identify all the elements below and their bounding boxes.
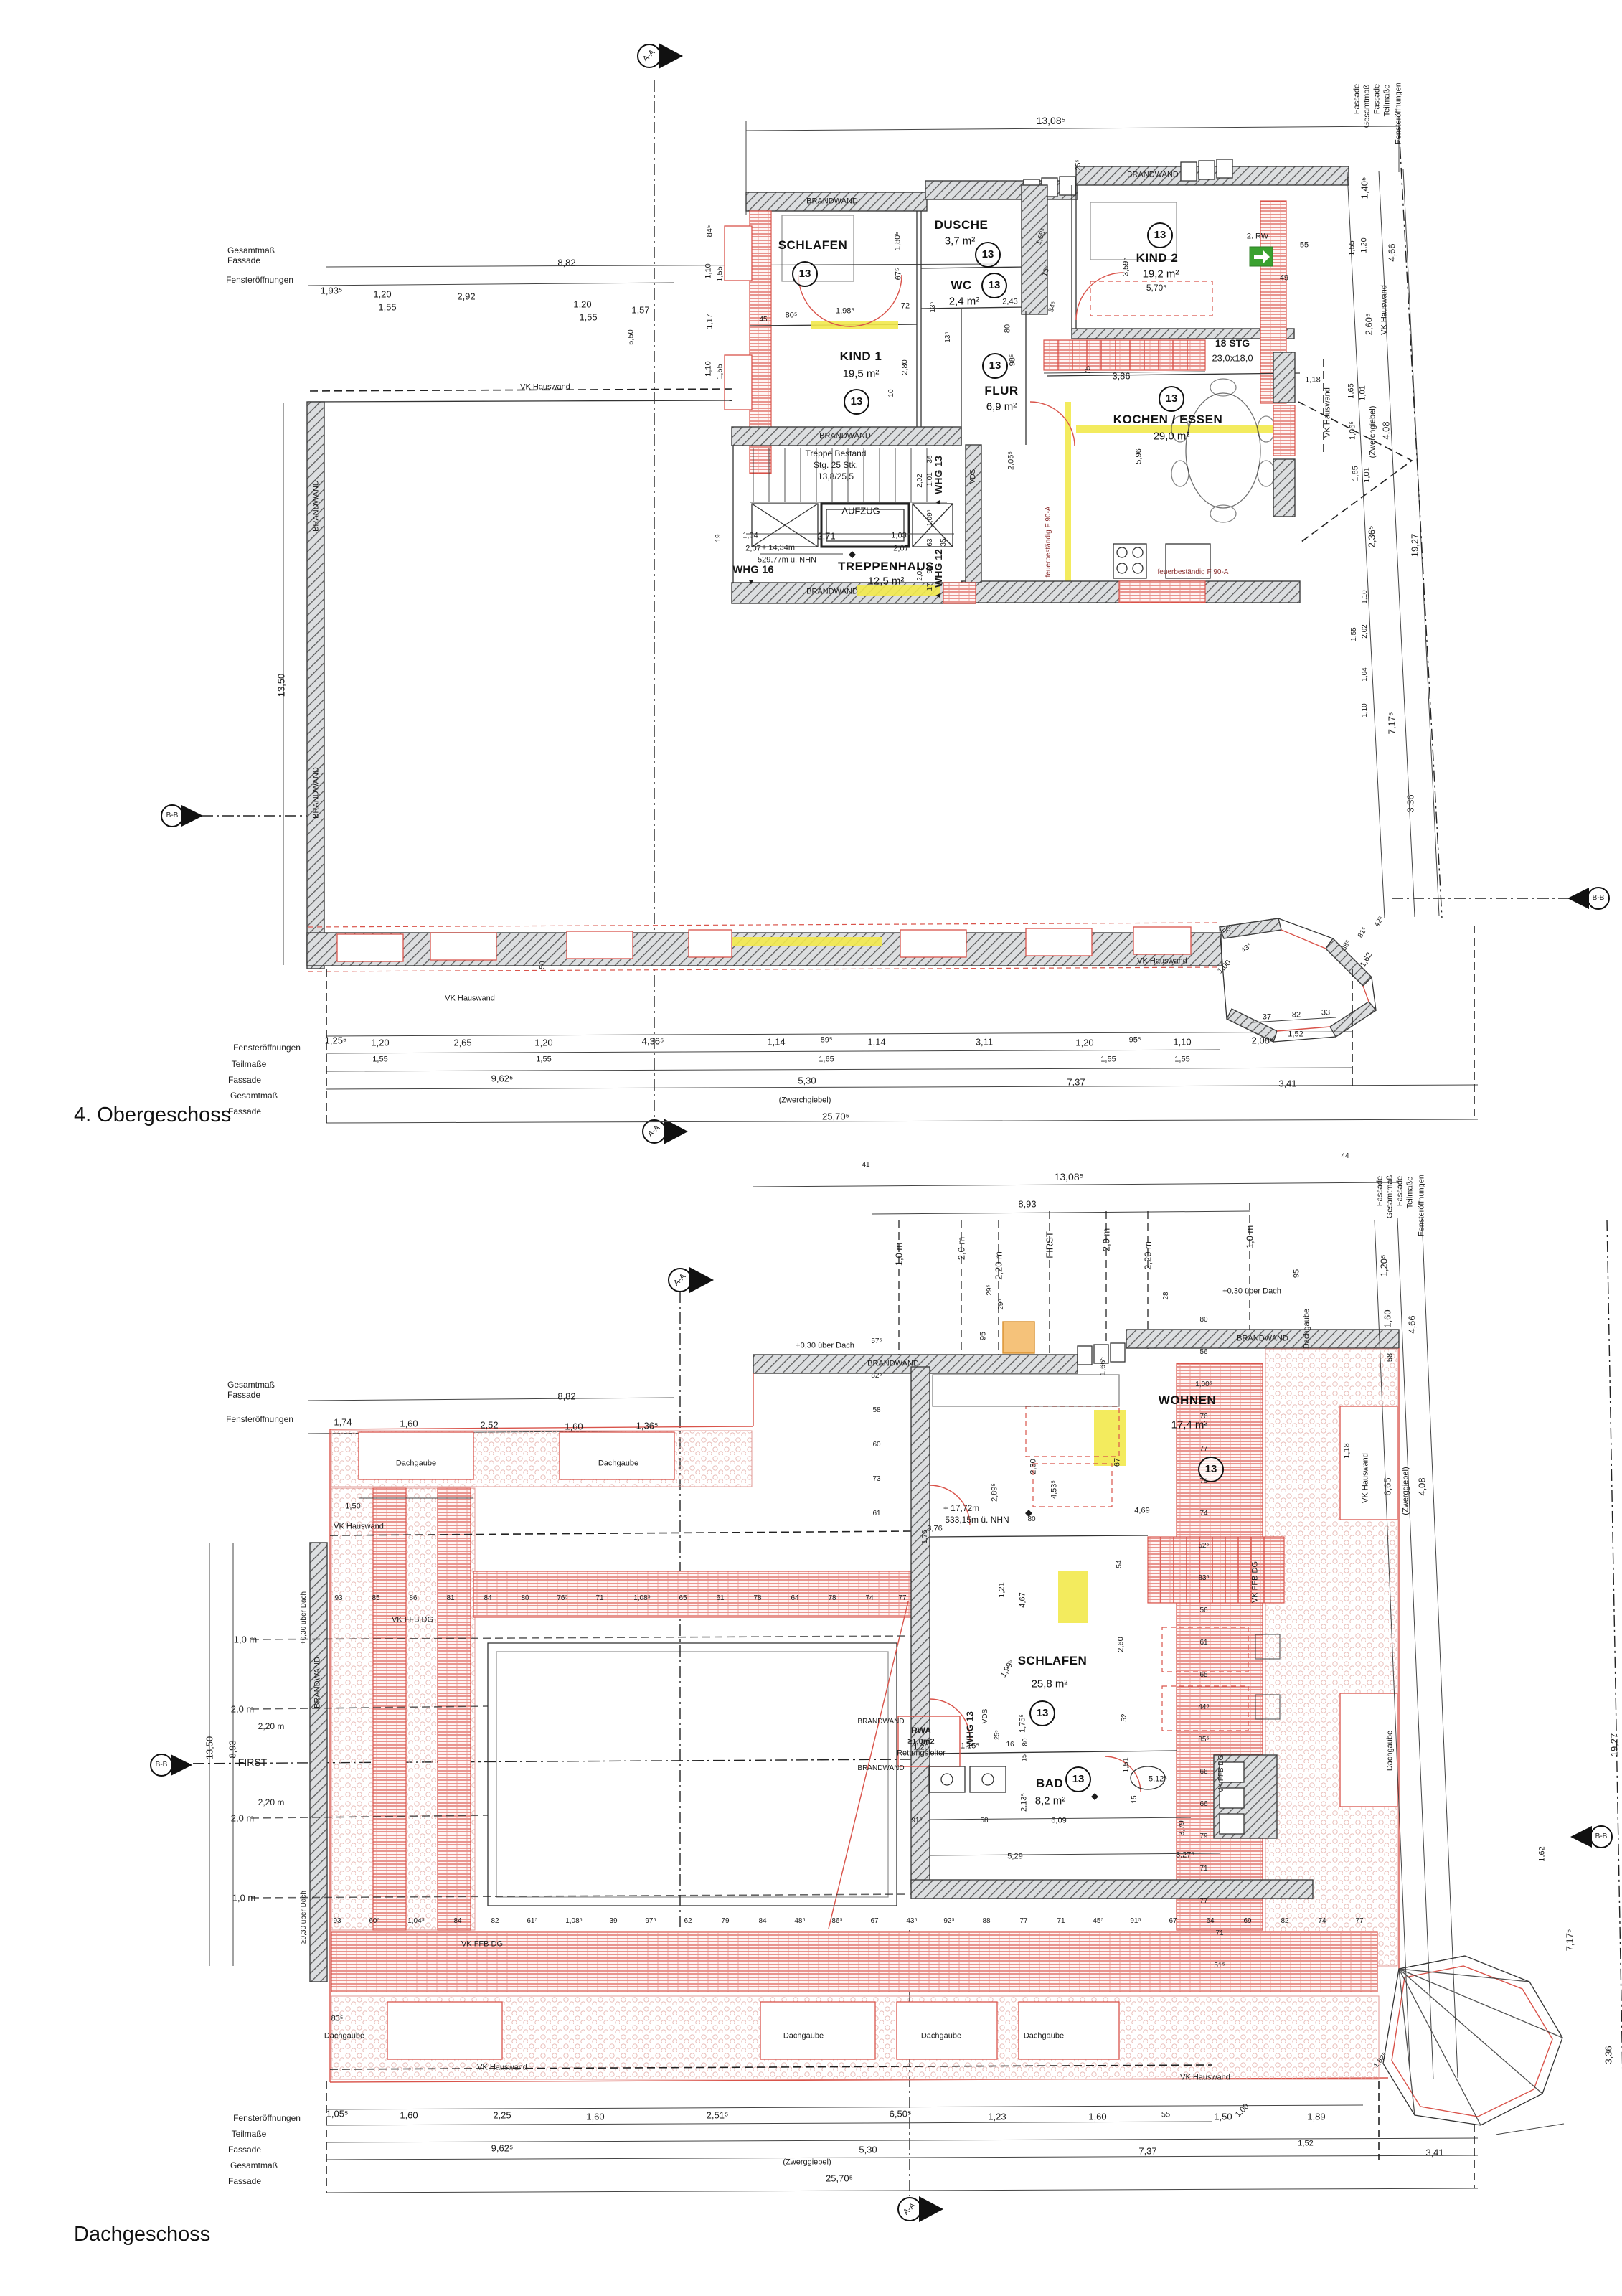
dim-label: 1,51 (1123, 1757, 1131, 1772)
brandwand-label: BRANDWAND (313, 767, 321, 819)
dim-label: 72 (901, 303, 910, 311)
dim-label: 93 (334, 1595, 342, 1602)
room-area: 17,4 m² (1171, 1419, 1208, 1431)
dim-label: 77 (898, 1595, 906, 1602)
dim-label: 2,08⁵ (1252, 1036, 1274, 1045)
dim-label: 82 (491, 1918, 499, 1925)
dim-label: VK Hauswand (334, 1523, 384, 1531)
room-label-wohnen: WOHNEN (1159, 1393, 1216, 1408)
dim-label: Dachgaube (783, 2033, 824, 2041)
dim-label: 1,17 (707, 314, 715, 329)
section-marker-label: A-A (647, 1124, 662, 1139)
dim-label: 1,18 (1305, 377, 1320, 385)
dim-label: 71 (595, 1595, 603, 1602)
dim-label: +0,30 über Dach (301, 1591, 308, 1645)
section-marker-label: A-A (673, 1273, 688, 1288)
dim-label: 23,0x18,0 (1212, 354, 1253, 363)
dim-label: 73 (872, 1476, 880, 1483)
dim-label: 89⁵ (821, 1037, 833, 1045)
room-area: 8,2 m² (1035, 1795, 1066, 1807)
room-area: 2,4 m² (949, 296, 980, 308)
dim-label: (Zwerchgiebel) (1369, 406, 1377, 458)
dim-label: 13⁵ (1042, 265, 1052, 278)
dim-label: VK Hauswand (1362, 1453, 1370, 1503)
dim-label: Fassade (228, 2177, 261, 2186)
dim-label: 78 (828, 1595, 836, 1602)
dim-label: 38⁵ (1341, 939, 1352, 952)
dim-label: WHG 13 (933, 456, 943, 494)
dim-label: 36 (927, 455, 934, 463)
dim-label: 2,51⁵ (707, 2111, 729, 2120)
dim-label: 85 (372, 1595, 379, 1602)
dim-label: 2,71 (817, 532, 835, 541)
dim-label: 75 (1085, 366, 1093, 375)
dim-label: 45⁵ (1093, 1918, 1103, 1925)
dim-label: 65 (1199, 1672, 1207, 1679)
dim-label: Fassade (1354, 84, 1362, 114)
dim-label: 19,27 (1410, 534, 1420, 557)
dim-label: 1,20 (371, 1038, 389, 1048)
dim-label: 1,01 (1359, 385, 1367, 400)
dim-label: 2,20 m (258, 1798, 285, 1807)
unit-tag: 13 (1065, 1766, 1091, 1792)
dim-label: 13,8/25,5 (818, 472, 854, 481)
dim-label: 2,89⁵ (991, 1483, 999, 1502)
dim-label: 3,27⁵ (1176, 1852, 1194, 1860)
dim-label: 1,57 (631, 306, 649, 315)
dim-label: Teilmaße (232, 1060, 267, 1068)
dim-label: 2,25 (493, 2111, 511, 2120)
dim-label: Stg. 25 Stk. (814, 461, 858, 469)
dim-label: Dachgaube (324, 2033, 364, 2041)
dim-label: 1,55 (717, 364, 725, 379)
dim-label: 80 (1004, 324, 1012, 333)
dim-label: 5,50 (628, 329, 636, 344)
dim-label: 58 (1387, 1353, 1395, 1362)
dim-label: 33 (1321, 1010, 1330, 1017)
room-area: 19,2 m² (1143, 268, 1179, 281)
room-label-schlafen: SCHLAFEN (1018, 1654, 1088, 1668)
dim-label: 2,92 (457, 292, 475, 301)
dim-label: 67 (870, 1918, 878, 1925)
dim-label: 2,60 (1118, 1637, 1126, 1652)
dim-label: 1,93⁵ (321, 286, 343, 296)
dim-label: 5,96 (1136, 448, 1144, 464)
dim-label: 8,93 (228, 1740, 237, 1758)
dim-label: 1,04 (1362, 667, 1369, 681)
dim-label: Fassade (228, 1107, 261, 1116)
dim-label: 55 (1161, 2112, 1170, 2119)
section-marker-label: B-B (1595, 1833, 1608, 1840)
dim-label: 71 (1199, 1865, 1207, 1873)
dim-label: 29⁵ (998, 1299, 1005, 1309)
unit-tag: 13 (982, 353, 1008, 379)
dim-label: AUFZUG (841, 507, 880, 516)
dim-label: 6,65 (1383, 1477, 1392, 1495)
dim-label: 1,20 (573, 300, 591, 309)
dim-label: 1,10 (705, 361, 713, 376)
dim-label: VDS (970, 469, 977, 484)
dim-label: ≥0,30 über Dach (301, 1891, 308, 1944)
dim-label: 1,66⁵ (1100, 1357, 1108, 1375)
dim-label: VK Hauswand (1180, 2074, 1230, 2082)
dim-label: Gesamtmaß (227, 1380, 275, 1389)
brandwand-label: BRANDWAND (313, 480, 321, 532)
dim-label: 44 (1341, 1153, 1349, 1160)
dim-label: 67 (1169, 1918, 1177, 1925)
dim-label: 2,36⁵ (1367, 526, 1377, 548)
dim-label: 1,25⁵ (325, 1036, 347, 1045)
dim-label: 56⁵ (1222, 923, 1235, 936)
dim-label: Fassade (1374, 84, 1382, 114)
dim-label: 1,00⁵ (1195, 1381, 1212, 1388)
dim-label: 52 (1121, 1713, 1128, 1721)
dim-label: 67⁵ (895, 268, 903, 281)
dim-label: 1,55 (536, 1056, 551, 1064)
dim-label: 6,09 (1051, 1817, 1066, 1825)
dim-label: 69 (1243, 1918, 1251, 1925)
dim-label: 3,79 (1179, 1820, 1187, 1835)
dim-label: 13⁵ (945, 331, 952, 342)
dim-label: 77 (1355, 1918, 1363, 1925)
dim-label: 74 (1199, 1510, 1207, 1518)
dim-label: 84⁵ (707, 225, 715, 237)
dim-label: 95 (980, 1332, 988, 1340)
dim-label: 1,60 (400, 1419, 418, 1429)
dim-label: feuerbeständig F 90-A (1158, 569, 1229, 576)
dim-label: Fensteröffnungen (226, 276, 293, 284)
dim-label: 58 (872, 1407, 880, 1414)
dim-label: 78 (753, 1595, 761, 1602)
dim-label: 1,50 (345, 1503, 360, 1511)
dim-label: Teilmaße (232, 2130, 267, 2138)
dim-label: 2. RW (1247, 233, 1268, 241)
dim-label: 35 (940, 538, 948, 546)
dim-label: 18 STG (1215, 338, 1250, 348)
brandwand-label: BRANDWAND (1127, 171, 1179, 179)
dim-label: 34⁵ (1048, 301, 1059, 314)
dim-label: 63 (927, 538, 934, 546)
dim-label: 1,09⁵ (927, 509, 934, 527)
dim-label: 56 (1199, 1607, 1207, 1614)
dim-label: 88 (982, 1918, 990, 1925)
dim-label: Gesamtmaß (227, 246, 275, 255)
brandwand-label: BRANDWAND (806, 198, 858, 206)
dim-label: FIRST (1045, 1231, 1055, 1258)
dim-label: 41 (862, 1162, 869, 1169)
dim-label: VK Hauswand (445, 995, 495, 1003)
dim-label: 13,50 (205, 1736, 214, 1760)
dim-label: 4,08 (1382, 421, 1391, 439)
dim-label: 83⁵ (331, 2015, 344, 2023)
dim-label: 37 (1263, 1014, 1271, 1022)
dim-label: 10 (888, 389, 895, 397)
dim-label: 4,69 (1134, 1507, 1149, 1515)
room-label-kochen-essen: KOCHEN / ESSEN (1113, 413, 1222, 427)
dim-label: 16 (1006, 1741, 1014, 1749)
room-label-kind-1: KIND 1 (840, 349, 882, 364)
dim-label: 1,80⁵ (895, 232, 902, 250)
dim-label: Fensteröffnungen (226, 1415, 293, 1424)
dim-label: 1,99⁵ (1000, 1659, 1017, 1679)
dim-label: 1,10 (1362, 703, 1369, 717)
dim-label: WHG 16 (732, 565, 774, 575)
brandwand-label: BRANDWAND (819, 433, 871, 441)
dim-label: 3,59⁵ (1123, 258, 1131, 276)
dim-label: 1,60 (1088, 2112, 1106, 2122)
dim-label: VK Hauswand (477, 2064, 527, 2072)
dim-label: (Zwerchgiebel) (779, 1097, 831, 1105)
dim-label: 1,04 (742, 532, 758, 540)
dim-label: 13,50 (277, 674, 286, 697)
dim-label: Treppe Bestand (806, 449, 867, 458)
dim-label: Fassade (227, 256, 260, 265)
dim-label: VK Hauswand (1381, 285, 1389, 335)
room-label-treppenhaus: TREPPENHAUS (838, 560, 934, 574)
dim-label: 44⁵ (1198, 1704, 1209, 1711)
dim-label: 1,03 (891, 532, 906, 540)
dim-label: 48⁵ (794, 1918, 805, 1925)
dim-label: 77 (1199, 1446, 1207, 1453)
dim-label: Fassade (228, 2145, 261, 2154)
dim-label: 93 (333, 1918, 341, 1925)
dim-label: 57⁵ (871, 1338, 882, 1345)
dim-label: 2,30 (1030, 1459, 1038, 1474)
room-area: 12,5 m² (868, 575, 905, 588)
dim-label: 82⁵ (871, 1373, 882, 1380)
dim-label: 25⁵ (1075, 159, 1083, 170)
dim-label: 1,20⁵ (1380, 1255, 1389, 1277)
section-marker-label: A-A (902, 2202, 918, 2217)
room-label-bad: BAD (1036, 1777, 1063, 1791)
dim-label: 8,82 (557, 258, 575, 268)
dim-label: Fensteröffnungen (1418, 1175, 1426, 1236)
dim-label: 2,07 (745, 545, 760, 553)
dim-label: 60 (872, 1441, 880, 1449)
dim-label: 1,01 (1364, 467, 1372, 482)
dim-label: 2,02 (917, 474, 924, 487)
dim-label: 1,75⁵ (1019, 1714, 1027, 1733)
dim-label: 19 (715, 534, 722, 542)
dim-label: 1,58⁵ (1035, 227, 1047, 246)
dim-label: 3,86 (1112, 372, 1130, 381)
dim-label: 1,65 (1348, 383, 1356, 398)
dim-label: 3,76 (927, 1525, 942, 1533)
dim-label: 15 (1131, 1795, 1138, 1803)
apartment-marker-icon: ▼ (748, 579, 755, 587)
dim-label: 84 (758, 1918, 766, 1925)
level-marker-icon: ◆ (849, 550, 856, 559)
dim-label: 51⁵ (1214, 1962, 1225, 1970)
dim-label: 1,89 (1307, 2112, 1325, 2122)
dim-label: 2,20 m (994, 1251, 1004, 1280)
dim-label: 1,55 (372, 1056, 387, 1064)
dim-label: 9,62⁵ (491, 1074, 514, 1083)
dim-label: 82 (1281, 1918, 1288, 1925)
section-marker-label: B-B (156, 1761, 168, 1769)
dim-label: 50 (539, 961, 547, 969)
unit-tag: 13 (1147, 222, 1173, 248)
dim-label: 2,0 m (1102, 1228, 1111, 1252)
dim-label: Dachgaube (1303, 1309, 1311, 1349)
dim-label: 61⁵ (527, 1918, 537, 1925)
brandwand-label: BRANDWAND (314, 1657, 322, 1708)
dim-label: 56 (1199, 1349, 1207, 1356)
dim-label: 1,15⁵ (961, 1743, 979, 1751)
section-marker-label: A-A (642, 49, 657, 64)
dim-label: Gesamtmaß (230, 1091, 278, 1100)
dim-label: 5,70⁵ (1146, 283, 1166, 292)
annotation-layer: 4. Obergeschoss Dachgeschoss 13,08⁵A-AA-… (0, 0, 1622, 2296)
dim-label: 77 (1199, 1898, 1207, 1905)
room-area: 3,7 m² (945, 235, 976, 248)
dim-label: 1,50 (1214, 2112, 1232, 2122)
dim-label: 1,55 (378, 303, 396, 312)
dim-label: 4,53⁵ (1051, 1480, 1059, 1499)
dim-label: + 17,72m (943, 1504, 979, 1512)
dim-label: 1,65 (1352, 466, 1360, 481)
dim-label: WHG 12 (933, 549, 943, 588)
dim-label: 76⁵ (557, 1595, 567, 1602)
dim-label: 74 (1318, 1918, 1326, 1925)
brandwand-label: BRANDWAND (857, 1765, 904, 1772)
dim-label: 2,0 m (231, 1705, 255, 1714)
dim-label: 1,60 (1383, 1309, 1392, 1327)
dim-label: 71 (1215, 1930, 1223, 1937)
dim-label: 13⁵ (930, 301, 937, 312)
dim-label: Dachgaube (396, 1460, 436, 1468)
dim-label: 43⁵ (906, 1918, 917, 1925)
dim-label: 71 (1057, 1918, 1065, 1925)
dim-label: 1,20 (534, 1038, 552, 1048)
dim-label: VK Hauswand (1324, 387, 1332, 438)
unit-tag: 13 (1159, 386, 1184, 412)
room-label-flur: FLUR (984, 384, 1018, 398)
dim-label: 60⁵ (369, 1918, 379, 1925)
unit-tag: 13 (1198, 1457, 1224, 1482)
dim-label: 7,37 (1138, 2147, 1156, 2156)
dim-label: VK Hauswand (1137, 958, 1187, 966)
room-label-dusche: DUSCHE (935, 218, 989, 232)
dim-label: VK FFB DG (1218, 1755, 1225, 1793)
dim-label: 1,00 (1217, 959, 1233, 976)
dim-label: 95⁵ (1129, 1037, 1141, 1045)
dim-label: Fassade (1397, 1176, 1405, 1206)
dim-label: 85⁵ (1198, 1736, 1209, 1744)
dim-label: 1,0 m (232, 1893, 256, 1903)
brandwand-label: BRANDWAND (806, 588, 858, 596)
dim-label: 1,10 (705, 263, 713, 278)
dim-label: 1,55 (1349, 240, 1357, 255)
dim-label: VDS (982, 1709, 989, 1724)
room-area: 6,9 m² (986, 401, 1017, 413)
dim-label: 81⁵ (1357, 926, 1369, 939)
dim-label: 7,37 (1067, 1078, 1085, 1087)
dim-label: Teilmaße (1384, 85, 1392, 117)
dim-label: 9,62⁵ (491, 2144, 514, 2153)
dim-label: 1,20 (1075, 1038, 1093, 1048)
dim-label: 2,0 m (957, 1237, 966, 1261)
dim-label: 1,05⁵ (326, 2109, 349, 2119)
dim-label: Fensteröffnungen (233, 2114, 301, 2122)
dim-label: 13,08⁵ (1055, 1172, 1084, 1182)
dim-label: 1,62⁵ (1373, 2052, 1390, 2070)
dim-label: 4,67 (1019, 1592, 1027, 1607)
dim-label: 1,55 (579, 313, 597, 322)
dim-label: 1,55 (1351, 627, 1358, 641)
dim-label: 1,20 (373, 290, 391, 299)
dim-label: 1,55 (1174, 1056, 1189, 1064)
dim-label: (Zwerggiebel) (1402, 1467, 1410, 1515)
dim-label: feuerbeständig F 90-A (1045, 507, 1052, 578)
dim-label: (Zwerggiebel) (783, 2159, 831, 2167)
brandwand-label: BRANDWAND (857, 1718, 904, 1726)
room-label-wc: WC (951, 278, 971, 293)
dim-label: 95 (1293, 1269, 1301, 1278)
dim-label: FIRST (238, 1757, 267, 1767)
dim-label: 7,17⁵ (1565, 1929, 1575, 1952)
dim-label: 2,43 (1002, 298, 1017, 306)
dim-label: 25,70⁵ (826, 2174, 853, 2183)
apartment-marker-icon: ▲ (935, 499, 943, 507)
dim-label: 2,80 (902, 359, 910, 375)
dim-label: 2,65 (453, 1038, 471, 1048)
dim-label: 1,20 (913, 1744, 928, 1752)
dim-label: 2,0 m (231, 1814, 255, 1823)
dim-label: 45 (759, 316, 767, 324)
dim-label: 97⁵ (645, 1918, 656, 1925)
dim-label: 61 (1199, 1639, 1207, 1647)
dim-label: 1,18 (1344, 1443, 1352, 1458)
dim-label: 7,17⁵ (1387, 712, 1397, 735)
dim-label: 8,82 (557, 1392, 575, 1401)
dim-label: 1,40⁵ (1360, 177, 1369, 199)
dim-label: 1,36⁵ (636, 1421, 659, 1431)
section-marker-label: B-B (1593, 895, 1605, 902)
dim-label: 1,0 m (895, 1243, 904, 1266)
room-area: 19,5 m² (843, 368, 880, 380)
dim-label: +0,30 über Dach (1222, 1288, 1281, 1296)
dim-label: 1,10 (1362, 590, 1369, 603)
dim-label: 4,36⁵ (642, 1037, 664, 1046)
unit-tag: 13 (792, 261, 818, 287)
section-marker-label: B-B (166, 812, 179, 819)
dim-label: 5,30 (798, 1076, 816, 1086)
dim-label: 4,66 (1408, 1315, 1417, 1333)
dim-label: 64 (791, 1595, 798, 1602)
dim-label: 1,00 (1235, 2103, 1251, 2119)
dim-label: RWA (911, 1726, 931, 1735)
dim-label: VK FFB DG (392, 1617, 433, 1624)
brandwand-label: BRANDWAND (1237, 1335, 1288, 1343)
dim-label: 4,08 (1418, 1477, 1427, 1495)
dim-label: 86 (409, 1595, 417, 1602)
dim-label: 80 (1027, 1516, 1035, 1523)
dim-label: 80 (1199, 1317, 1207, 1324)
dim-label: + 14,34m (762, 545, 795, 552)
floor-title-obergeschoss: 4. Obergeschoss (74, 1104, 231, 1127)
dim-label: 92⁵ (943, 1918, 954, 1925)
dim-label: 3,36 (1406, 794, 1415, 812)
dim-label: Gesamtmaß (1387, 1175, 1395, 1219)
dim-label: 1,14 (767, 1038, 785, 1047)
dim-label: 13,08⁵ (1037, 116, 1066, 126)
dim-label: 3,41 (1425, 2148, 1443, 2158)
dim-label: Fensteröffnungen (233, 1043, 301, 1052)
dim-label: 1,62 (1359, 951, 1374, 969)
dim-label: 1,08⁵ (565, 1918, 583, 1925)
dim-label: 80 (1022, 1738, 1029, 1746)
